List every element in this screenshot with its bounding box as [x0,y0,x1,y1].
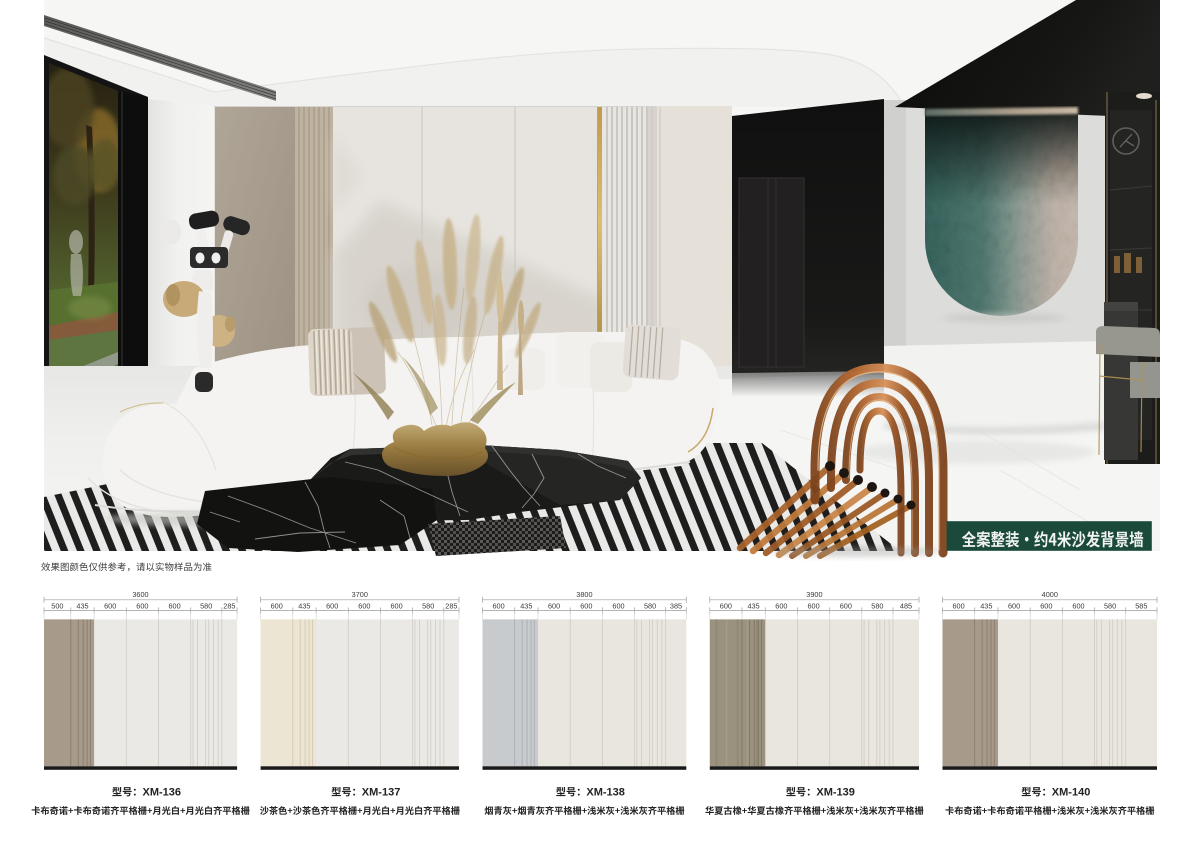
svg-text:600: 600 [136,602,148,611]
svg-text:600: 600 [493,602,505,611]
svg-text:580: 580 [422,602,434,611]
svg-text:XM-139: XM-139 [816,787,855,799]
svg-text:435: 435 [76,602,88,611]
svg-text:600: 600 [1040,602,1052,611]
svg-text:600: 600 [953,602,965,611]
svg-text:3700: 3700 [352,590,368,599]
svg-text:3600: 3600 [132,590,148,599]
svg-text:600: 600 [358,602,370,611]
svg-text:580: 580 [644,602,656,611]
svg-text:585: 585 [1135,602,1147,611]
svg-text:485: 485 [900,602,912,611]
svg-text:600: 600 [271,602,283,611]
svg-text:XM-136: XM-136 [143,787,182,799]
svg-text:XM-137: XM-137 [362,787,401,799]
svg-text:3900: 3900 [806,590,822,599]
svg-text:600: 600 [720,602,732,611]
svg-text:600: 600 [391,602,403,611]
svg-text:500: 500 [51,602,63,611]
svg-text:XM-138: XM-138 [586,787,625,799]
svg-text:580: 580 [1104,602,1116,611]
svg-text:600: 600 [612,602,624,611]
svg-text:600: 600 [1072,602,1084,611]
svg-text:600: 600 [326,602,338,611]
svg-text:600: 600 [548,602,560,611]
svg-text:4000: 4000 [1042,590,1058,599]
svg-text:600: 600 [775,602,787,611]
svg-text:3800: 3800 [576,590,592,599]
svg-text:600: 600 [840,602,852,611]
svg-text:600: 600 [580,602,592,611]
svg-text:285: 285 [223,602,235,611]
svg-text:435: 435 [520,602,532,611]
svg-text:385: 385 [670,602,682,611]
svg-text:285: 285 [445,602,457,611]
svg-text:580: 580 [200,602,212,611]
svg-text:600: 600 [104,602,116,611]
svg-text:580: 580 [871,602,883,611]
svg-text:XM-140: XM-140 [1052,787,1091,799]
svg-text:435: 435 [980,602,992,611]
svg-text:600: 600 [1008,602,1020,611]
svg-text:600: 600 [808,602,820,611]
svg-text:435: 435 [298,602,310,611]
svg-text:435: 435 [748,602,760,611]
svg-text:600: 600 [169,602,181,611]
